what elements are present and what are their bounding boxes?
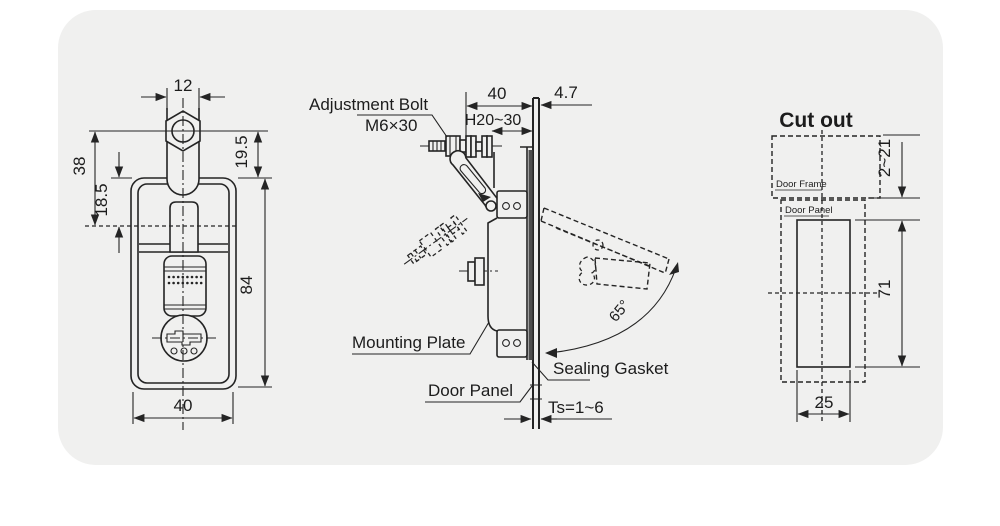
dim-depth: 40 [488, 84, 507, 103]
dim-cutout-width: 25 [815, 393, 834, 412]
cutout-title: Cut out [779, 109, 852, 132]
dim-offset: 4.7 [554, 83, 578, 102]
label-door-panel-cutout: Door Panel [785, 205, 833, 216]
trigger-button [170, 202, 198, 252]
technical-drawing-page: 12 19.5 84 38 18.5 40 [0, 0, 1000, 526]
pivot [486, 201, 496, 211]
bottom-bracket [497, 330, 527, 357]
label-door-frame: Door Frame [776, 179, 827, 190]
dim-top-to-centerline: 18.5 [92, 183, 111, 216]
label-mounting-plate: Mounting Plate [352, 333, 465, 352]
dim-body-width: 40 [174, 396, 193, 415]
dim-edge-gap: 2~21 [875, 139, 894, 177]
dim-stem-width: 12 [174, 76, 193, 95]
label-adjustment-bolt: Adjustment Bolt [309, 95, 428, 114]
label-sealing-gasket: Sealing Gasket [553, 359, 669, 378]
dim-grip-range: H20~30 [465, 112, 522, 129]
dim-cutout-height: 71 [875, 280, 894, 299]
grip-pad [164, 256, 206, 316]
dim-hex-to-body: 19.5 [232, 135, 251, 168]
label-door-panel: Door Panel [428, 381, 513, 400]
dim-panel-thickness: Ts=1~6 [548, 398, 604, 417]
dim-body-height: 84 [237, 276, 256, 295]
dim-hex-to-centerline: 38 [70, 157, 89, 176]
label-bolt-spec: M6×30 [365, 116, 417, 135]
side-bolt [475, 258, 484, 285]
latch-technical-drawing: 12 19.5 84 38 18.5 40 [0, 0, 1000, 526]
top-bracket [497, 191, 527, 218]
sealing-gasket-strip [529, 150, 533, 360]
